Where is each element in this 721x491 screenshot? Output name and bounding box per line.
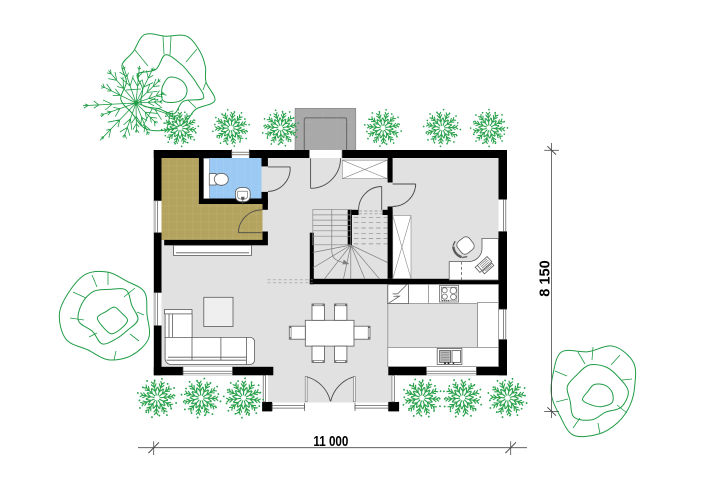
svg-text:11 000: 11 000 [313,433,348,450]
svg-text:8 150: 8 150 [536,260,553,297]
